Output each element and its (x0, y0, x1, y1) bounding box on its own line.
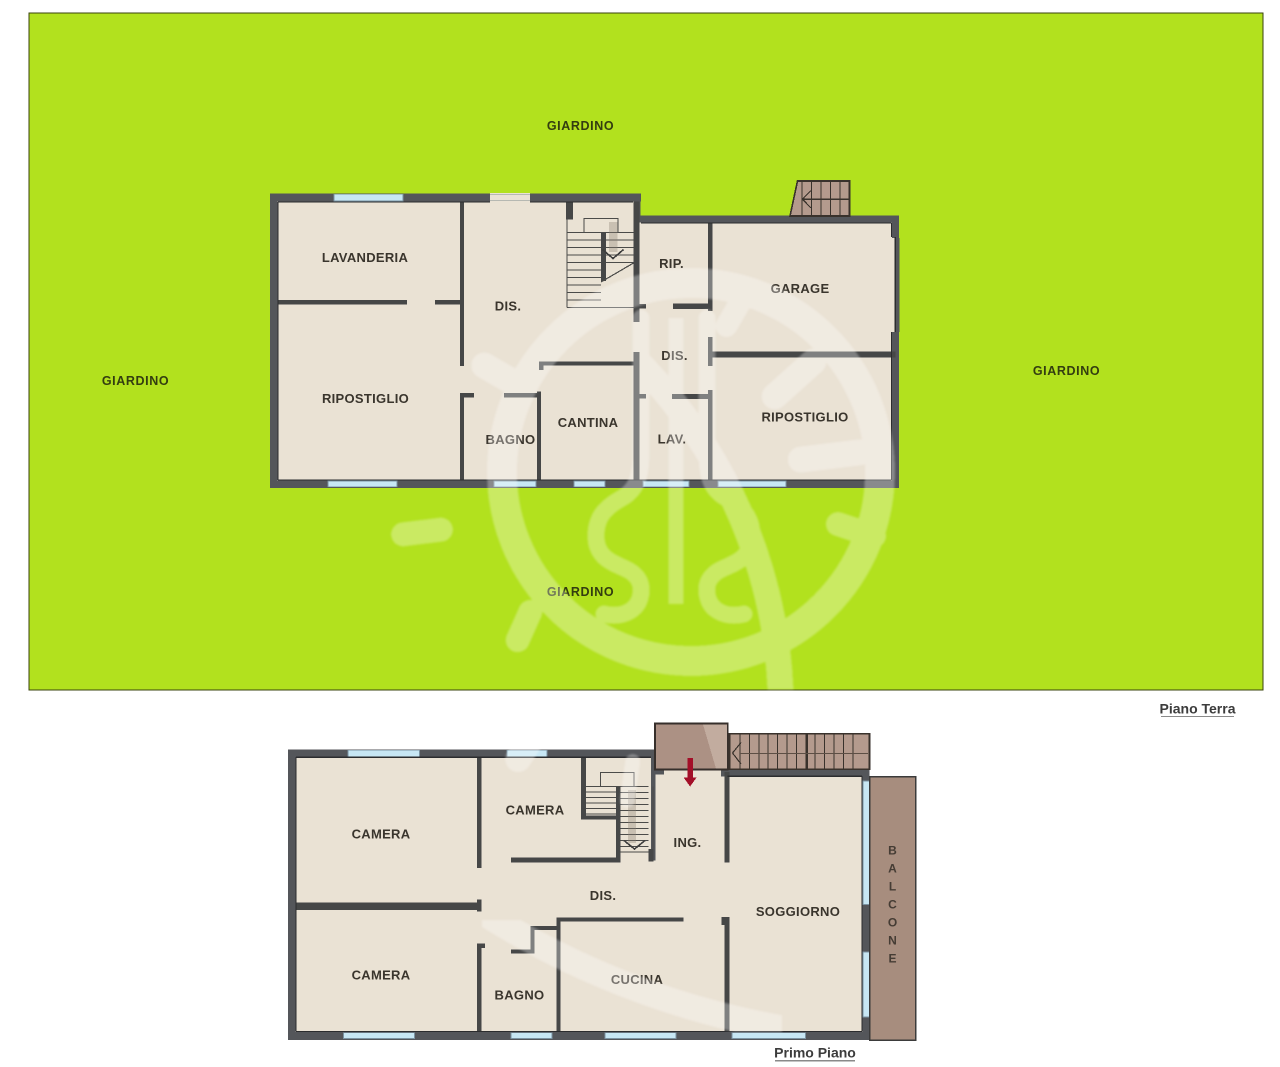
svg-text:Primo Piano: Primo Piano (774, 1045, 856, 1061)
svg-text:CAMERA: CAMERA (352, 827, 411, 842)
svg-text:N: N (888, 934, 897, 948)
svg-text:O: O (888, 916, 897, 930)
svg-text:BAGNO: BAGNO (495, 988, 545, 1003)
svg-text:Piano Terra: Piano Terra (1160, 701, 1236, 717)
svg-text:DIS.: DIS. (590, 888, 616, 903)
svg-text:A: A (888, 862, 897, 876)
svg-text:SOGGIORNO: SOGGIORNO (756, 904, 840, 919)
svg-text:GIARDINO: GIARDINO (547, 119, 614, 133)
svg-text:GIARDINO: GIARDINO (1033, 364, 1100, 378)
svg-text:C: C (888, 898, 897, 912)
svg-text:L: L (889, 880, 896, 894)
svg-text:GIARDINO: GIARDINO (102, 374, 169, 388)
svg-text:LAVANDERIA: LAVANDERIA (322, 250, 409, 265)
svg-text:E: E (888, 952, 896, 966)
svg-text:RIPOSTIGLIO: RIPOSTIGLIO (322, 391, 409, 406)
svg-text:DIS.: DIS. (495, 299, 521, 314)
svg-text:CANTINA: CANTINA (558, 415, 619, 430)
svg-text:B: B (888, 844, 897, 858)
svg-text:CAMERA: CAMERA (506, 803, 565, 818)
svg-text:ING.: ING. (674, 835, 702, 850)
svg-text:CAMERA: CAMERA (352, 968, 411, 983)
svg-text:RIPOSTIGLIO: RIPOSTIGLIO (761, 410, 848, 425)
